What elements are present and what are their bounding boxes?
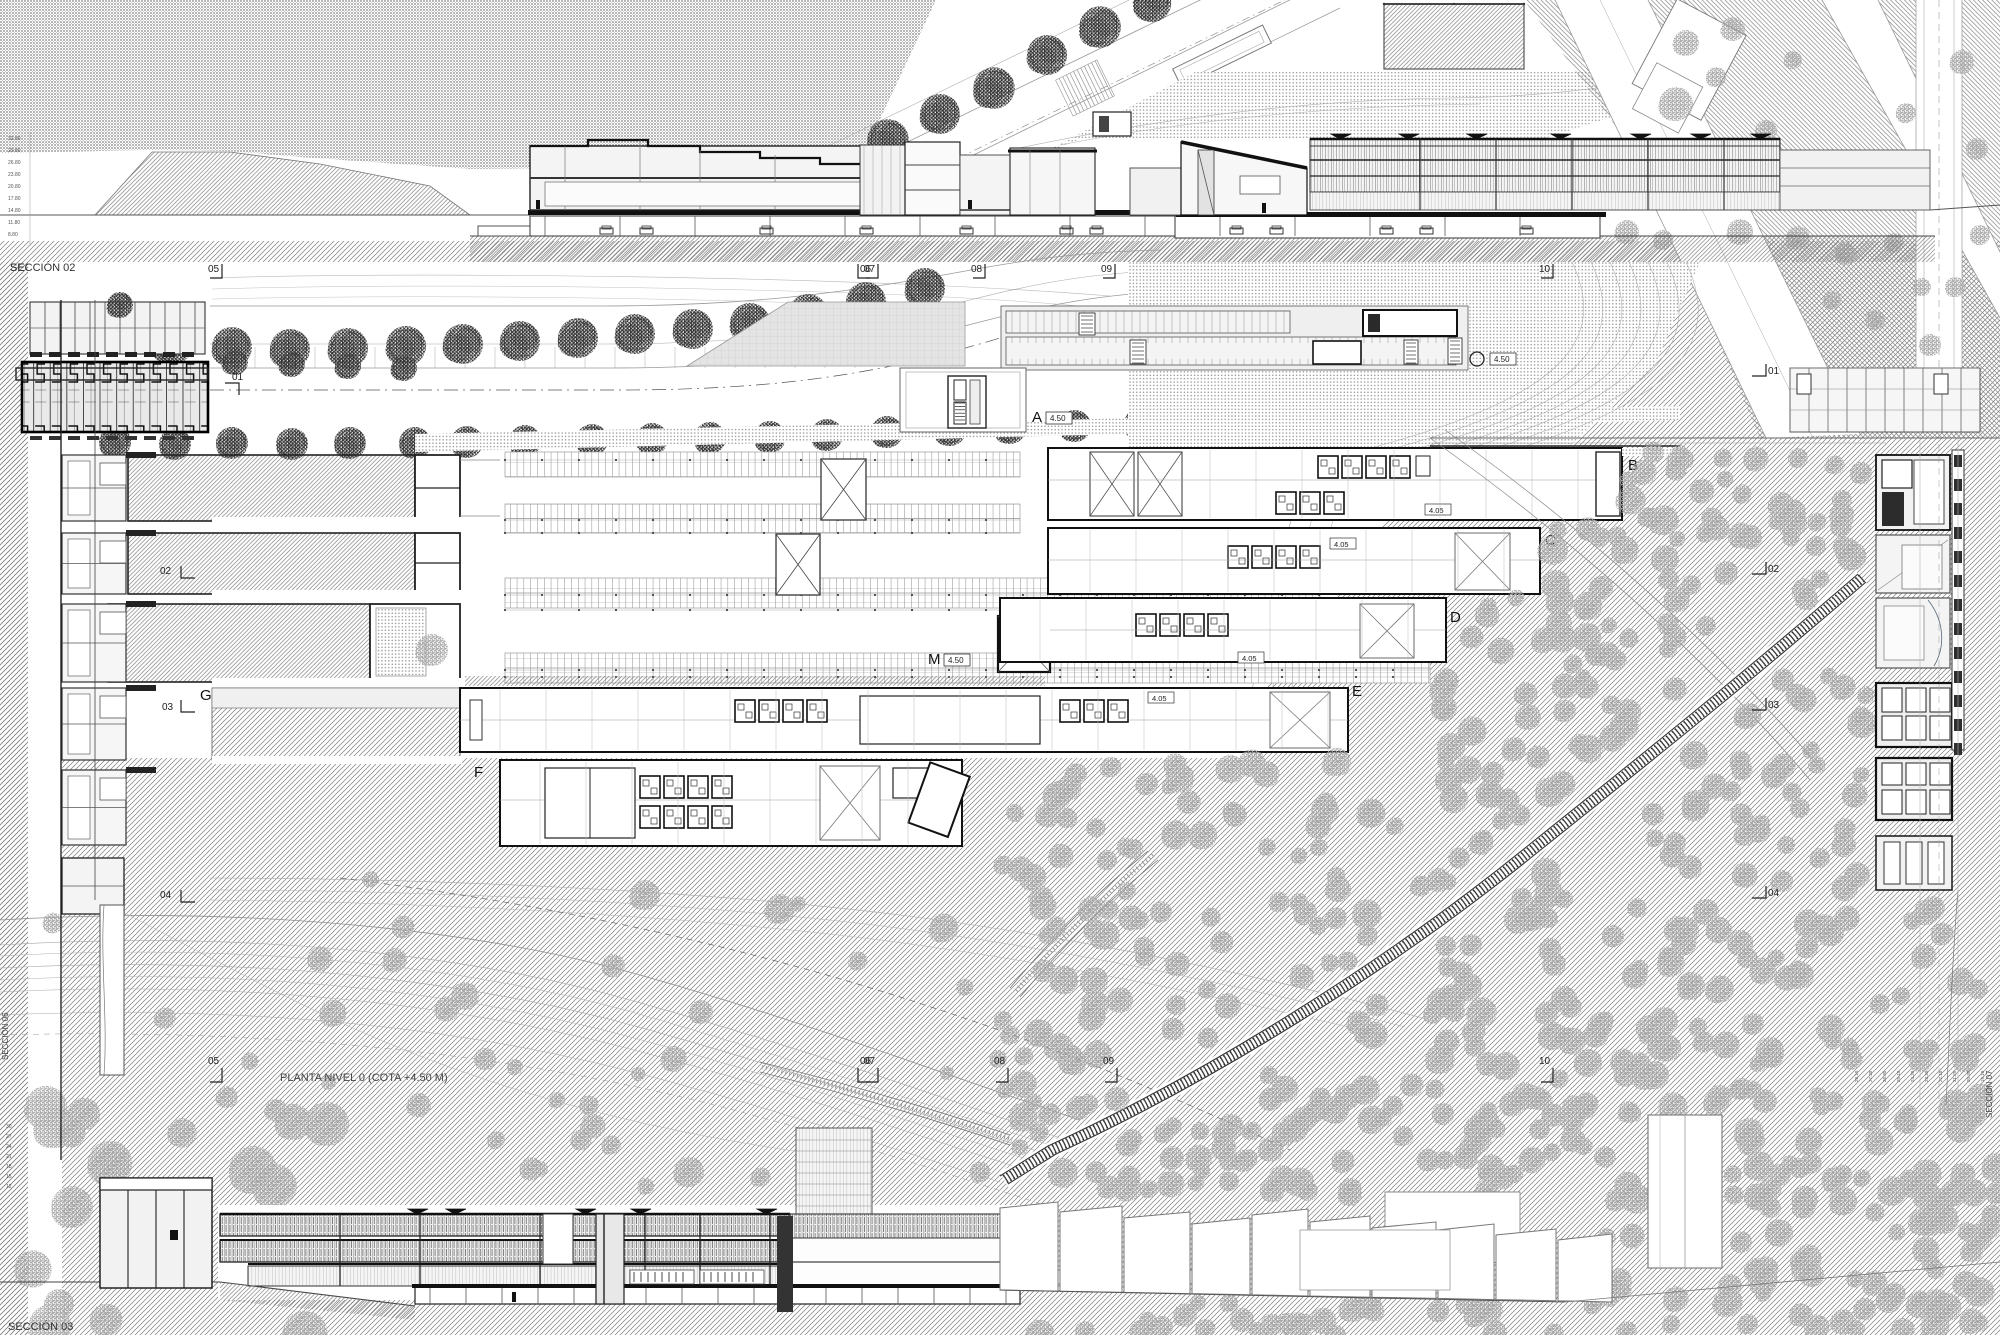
svg-text:02: 02: [1768, 564, 1780, 575]
svg-text:07: 07: [864, 264, 876, 275]
svg-text:M: M: [928, 651, 941, 668]
svg-text:4.05: 4.05: [1334, 540, 1349, 549]
svg-text:08: 08: [971, 264, 983, 275]
svg-text:F: F: [474, 764, 483, 781]
svg-text:4.05: 4.05: [1429, 506, 1444, 515]
svg-text:09: 09: [1101, 264, 1113, 275]
svg-text:17.80: 17.80: [8, 196, 21, 202]
svg-text:11.80: 11.80: [8, 220, 20, 226]
svg-text:4.50: 4.50: [948, 656, 964, 665]
svg-text:4.50: 4.50: [1050, 414, 1066, 423]
svg-text:20.80: 20.80: [8, 184, 21, 190]
svg-text:E: E: [1352, 683, 1362, 700]
svg-text:26.30: 26.30: [1882, 1070, 1887, 1082]
svg-text:05: 05: [208, 264, 220, 275]
svg-text:30: 30: [6, 1124, 12, 1130]
svg-text:04: 04: [1768, 888, 1780, 899]
svg-text:18: 18: [6, 1164, 12, 1170]
svg-text:D: D: [1450, 609, 1461, 626]
svg-text:19.10: 19.10: [1980, 1070, 1985, 1082]
svg-text:SECCIÓN 06: SECCIÓN 06: [1, 1012, 10, 1060]
svg-text:21.20: 21.20: [1952, 1070, 1957, 1082]
svg-text:25.10: 25.10: [1896, 1070, 1901, 1082]
svg-text:04: 04: [160, 890, 172, 901]
svg-text:8.80: 8.80: [8, 232, 18, 238]
svg-text:32.80: 32.80: [8, 136, 21, 142]
svg-text:4.05: 4.05: [1152, 694, 1167, 703]
svg-text:27.20: 27.20: [1868, 1070, 1873, 1082]
svg-text:28.10: 28.10: [1854, 1070, 1859, 1082]
svg-text:4.50: 4.50: [1494, 355, 1510, 364]
svg-text:4.05: 4.05: [1242, 654, 1257, 663]
svg-text:24.20: 24.20: [1910, 1070, 1915, 1082]
svg-text:26.80: 26.80: [8, 160, 21, 166]
svg-text:SECCIÓN 03: SECCIÓN 03: [8, 1320, 73, 1333]
svg-text:07: 07: [864, 1056, 876, 1067]
svg-text:12: 12: [6, 1184, 12, 1190]
svg-text:01: 01: [232, 372, 244, 383]
svg-text:SECCIÓN 02: SECCIÓN 02: [10, 261, 75, 274]
svg-text:PLANTA NIVEL 0 (COTA +4.50 M): PLANTA NIVEL 0 (COTA +4.50 M): [280, 1072, 448, 1084]
svg-text:G: G: [200, 687, 212, 704]
svg-text:02: 02: [160, 566, 172, 577]
svg-text:29.80: 29.80: [8, 148, 21, 154]
svg-text:10: 10: [1539, 264, 1551, 275]
svg-text:A: A: [1032, 409, 1042, 426]
svg-text:SECCIÓN 07: SECCIÓN 07: [1985, 1070, 1994, 1118]
svg-text:21: 21: [6, 1154, 12, 1160]
svg-text:03: 03: [162, 702, 174, 713]
svg-text:09: 09: [1103, 1056, 1115, 1067]
svg-text:23.30: 23.30: [1924, 1070, 1929, 1082]
svg-text:23.80: 23.80: [8, 172, 21, 178]
svg-text:24: 24: [6, 1144, 12, 1150]
svg-text:08: 08: [994, 1056, 1006, 1067]
svg-text:05: 05: [208, 1056, 220, 1067]
svg-text:14.80: 14.80: [8, 208, 21, 214]
svg-text:27: 27: [6, 1134, 12, 1140]
svg-text:20.30: 20.30: [1966, 1070, 1971, 1082]
svg-text:01: 01: [1768, 366, 1780, 377]
svg-text:03: 03: [1768, 700, 1780, 711]
svg-text:10: 10: [1539, 1056, 1551, 1067]
svg-text:15: 15: [6, 1174, 12, 1180]
